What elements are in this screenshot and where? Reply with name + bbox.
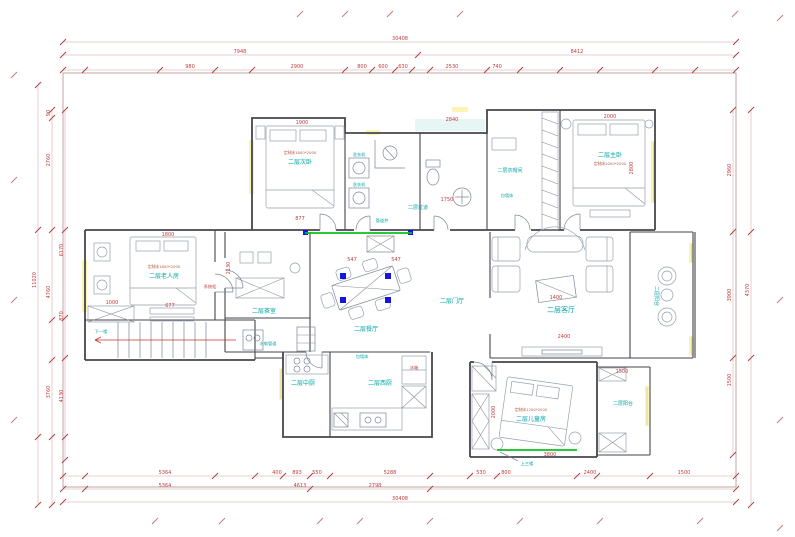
dim-left-seg: 6170 [59,244,65,257]
dim-left-seg: 4760 [46,286,52,299]
washer-label-2: 洗衣机 [353,181,366,188]
dim-top-right: 8412 [571,49,584,55]
dim-top-seg: 2530 [446,64,459,70]
room-label-balcony-east: 二层阳台 [653,286,660,306]
room-label-corridor: 二层过道 [408,204,428,211]
bathroom-1-fixtures [349,140,405,208]
inner-dim: 1400 [550,295,563,301]
dim-right-seg: 3900 [727,289,733,302]
inner-dim: 1900 [296,120,309,126]
dim-left-seg: 4130 [59,390,65,403]
washer-label-1: 洗衣机 [353,151,366,158]
master-bedroom-furniture [561,119,653,217]
kids-floor-note: 上三楼 [521,460,534,467]
dim-bottom-seg: 800 [501,470,511,476]
bed-spec-kids: 定制床1200*2000 [515,407,548,412]
dim-top-seg: 600 [378,64,388,70]
inner-dim: 547 [347,257,357,263]
secondary-bedroom-furniture [256,126,344,208]
dim-right-seg: 1500 [727,374,733,387]
inner-dim: 2800 [629,162,635,175]
drawing-sheet: 30408 7948 8412 980 2900 800 600 630 253… [0,0,795,537]
dim-bottom-seg: 5364 [159,483,172,489]
inner-dim: 2130 [226,262,232,275]
bed-spec-master: 定制床2000*2000 [594,161,627,166]
dim-left-total: 11020 [32,272,38,288]
dim-top-seg: 630 [398,64,408,70]
dim-bottom-seg: 2798 [369,483,382,489]
room-label-dining-room: 二层餐厅 [354,325,378,333]
dim-bottom-seg: 4613 [294,483,307,489]
plumbing-note: 水电管道 [260,340,278,347]
room-label-foyer: 二层门厅 [440,297,464,305]
dim-bottom-seg: 5364 [159,470,172,476]
dim-top-seg: 800 [357,64,367,70]
room-label-chinese-kitchen: 二层中厨 [291,379,315,387]
inner-dimensions: 1900 2840 2000 2800 1800 1000 677 1750 8… [106,114,635,458]
stair-direction-note: 下一楼 [95,328,108,335]
room-label-western-kitchen: 二层西厨 [368,380,392,387]
room-label-kids-room: 二层儿童房 [516,415,546,423]
inner-dim: 1800 [162,232,175,238]
system-cabinet-note: 系统柜 [204,283,217,290]
dim-left-seg: 2760 [46,154,52,167]
dim-bottom-seg: 893 [292,470,302,476]
room-label-closet: 二层衣帽间 [497,167,522,174]
dim-bottom-total: 30408 [392,496,408,502]
dim-top-left: 7948 [234,49,247,55]
door-swings [215,214,580,380]
pipe-shaft-box [367,236,394,252]
inner-dim: 1750 [441,197,454,203]
plumbing-fixtures [243,327,315,351]
dim-bottom-seg: 5288 [384,470,397,476]
inner-dim: 2000 [491,406,497,419]
staircase: 下一楼 [95,322,236,358]
dim-top-seg: 2900 [291,64,304,70]
inner-dim: 1000 [106,300,119,306]
room-label-living-room: 二层客厅 [547,305,575,314]
wall-wrap-note-2: 包墙体 [356,353,369,360]
room-label-elder-room: 二层老人房 [149,272,179,280]
inner-dim: 547 [391,257,401,263]
room-label-tea-room: 二层茶室 [252,307,276,315]
dim-bottom-seg: 1500 [678,470,691,476]
inner-dim: 2400 [558,334,571,340]
living-room-furniture [492,227,613,356]
dim-bottom-seg: 2400 [584,470,597,476]
inner-dim: 3800 [544,452,557,458]
inner-dim: 677 [165,303,175,309]
inner-dim: 2000 [604,114,617,120]
dim-top-total: 30408 [392,36,408,42]
inner-dim: 877 [295,216,305,222]
fridge-label: 冰箱 [410,364,418,371]
inner-dim: 2840 [446,117,459,123]
room-label-master-bedroom: 二层主卧 [598,151,622,159]
dim-right-seg: 2960 [727,164,733,177]
pipe-shaft-label: 管道井 [376,217,389,224]
room-label-balcony-south: 二层阳台 [613,400,633,407]
dim-right-total: 4370 [745,284,751,297]
bed-spec-elder: 定制床1800*2000 [148,264,181,269]
room-label-secondary-bedroom: 二层次卧 [288,158,312,166]
dim-left-seg: 3760 [46,386,52,399]
dim-bottom-seg: 530 [476,470,486,476]
bed-spec-secondary: 定制床1800*2000 [284,150,317,155]
tea-room-furniture [236,252,300,298]
elder-room-furniture [88,237,196,322]
balcony-south-fixtures [599,368,626,452]
balcony-east-fixtures [658,267,676,326]
dim-left-seg: 90 [46,110,52,116]
floor-plan-canvas: 30408 7948 8412 980 2900 800 600 630 253… [0,0,795,537]
dim-top-seg: 740 [492,64,502,70]
dim-bottom-seg: 400 [272,470,282,476]
dim-bottom-seg: 550 [312,470,322,476]
inner-dim: 1500 [616,369,629,375]
dim-left-seg: 870 [59,311,65,321]
wall-wrap-note: 包墙体 [501,192,514,199]
dining-table [314,249,418,327]
dim-top-seg: 980 [185,64,195,70]
